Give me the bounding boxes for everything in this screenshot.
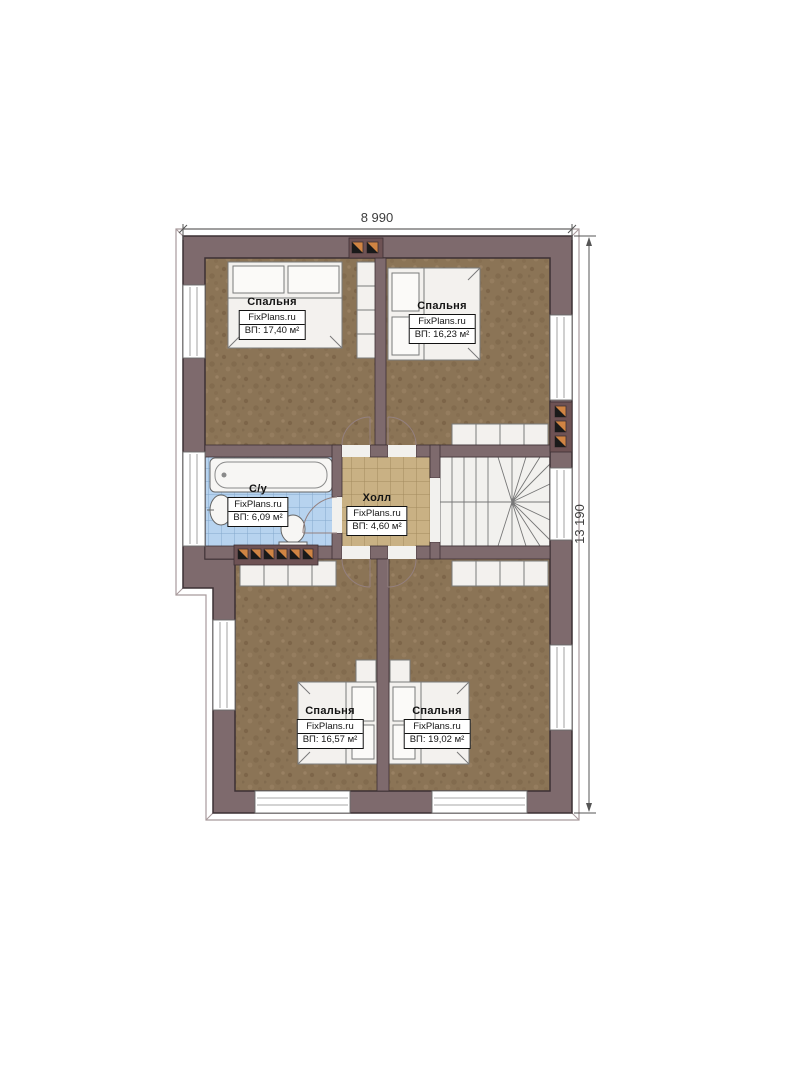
room-label-bedroom-top-left: Спальня FixPlans.ru ВП: 17,40 м² bbox=[239, 296, 306, 340]
window-icon bbox=[550, 468, 572, 540]
room-brand: FixPlans.ru bbox=[298, 720, 363, 734]
room-name: Холл bbox=[346, 492, 407, 504]
floor-plan: 8 990 13 190 Спальня FixPlans.ru ВП: 17,… bbox=[0, 0, 792, 1080]
room-label-bedroom-bottom-right: Спальня FixPlans.ru ВП: 19,02 м² bbox=[404, 705, 471, 749]
room-name: С/у bbox=[227, 483, 288, 495]
room-brand: FixPlans.ru bbox=[405, 720, 470, 734]
room-info-box: FixPlans.ru ВП: 17,40 м² bbox=[239, 310, 306, 340]
window-icon bbox=[213, 620, 235, 710]
room-area: ВП: 17,40 м² bbox=[240, 325, 305, 338]
window-icon bbox=[550, 645, 572, 730]
room-name: Спальня bbox=[239, 296, 306, 308]
room-brand: FixPlans.ru bbox=[240, 311, 305, 325]
wardrobe-icon bbox=[452, 561, 548, 586]
wardrobe-icon bbox=[452, 424, 548, 445]
room-label-bedroom-bottom-left: Спальня FixPlans.ru ВП: 16,57 м² bbox=[297, 705, 364, 749]
nightstand-icon bbox=[390, 660, 410, 682]
vent-block-icon bbox=[550, 402, 572, 452]
window-icon bbox=[432, 791, 527, 813]
room-name: Спальня bbox=[404, 705, 471, 717]
window-icon bbox=[183, 452, 205, 546]
room-info-box: FixPlans.ru ВП: 16,23 м² bbox=[409, 314, 476, 344]
nightstand-icon bbox=[356, 660, 376, 682]
room-area: ВП: 4,60 м² bbox=[347, 521, 406, 534]
room-info-box: FixPlans.ru ВП: 4,60 м² bbox=[346, 506, 407, 536]
room-brand: FixPlans.ru bbox=[228, 498, 287, 512]
room-info-box: FixPlans.ru ВП: 6,09 м² bbox=[227, 497, 288, 527]
room-brand: FixPlans.ru bbox=[410, 315, 475, 329]
vent-block-icon bbox=[349, 238, 383, 258]
room-label-bathroom: С/у FixPlans.ru ВП: 6,09 м² bbox=[227, 483, 288, 527]
window-icon bbox=[255, 791, 350, 813]
room-name: Спальня bbox=[297, 705, 364, 717]
room-label-bedroom-top-right: Спальня FixPlans.ru ВП: 16,23 м² bbox=[409, 300, 476, 344]
dimension-width-label: 8 990 bbox=[361, 210, 394, 225]
room-area: ВП: 19,02 м² bbox=[405, 734, 470, 747]
room-brand: FixPlans.ru bbox=[347, 507, 406, 521]
window-icon bbox=[550, 315, 572, 400]
floor-plan-svg: 8 990 13 190 bbox=[0, 0, 792, 1080]
room-info-box: FixPlans.ru ВП: 16,57 м² bbox=[297, 719, 364, 749]
room-label-hall: Холл FixPlans.ru ВП: 4,60 м² bbox=[346, 492, 407, 536]
vent-block-icon bbox=[234, 545, 318, 565]
window-icon bbox=[183, 285, 205, 358]
dimension-height-label: 13 190 bbox=[572, 504, 587, 544]
room-area: ВП: 6,09 м² bbox=[228, 512, 287, 525]
room-name: Спальня bbox=[409, 300, 476, 312]
room-area: ВП: 16,23 м² bbox=[410, 329, 475, 342]
room-info-box: FixPlans.ru ВП: 19,02 м² bbox=[404, 719, 471, 749]
room-area: ВП: 16,57 м² bbox=[298, 734, 363, 747]
